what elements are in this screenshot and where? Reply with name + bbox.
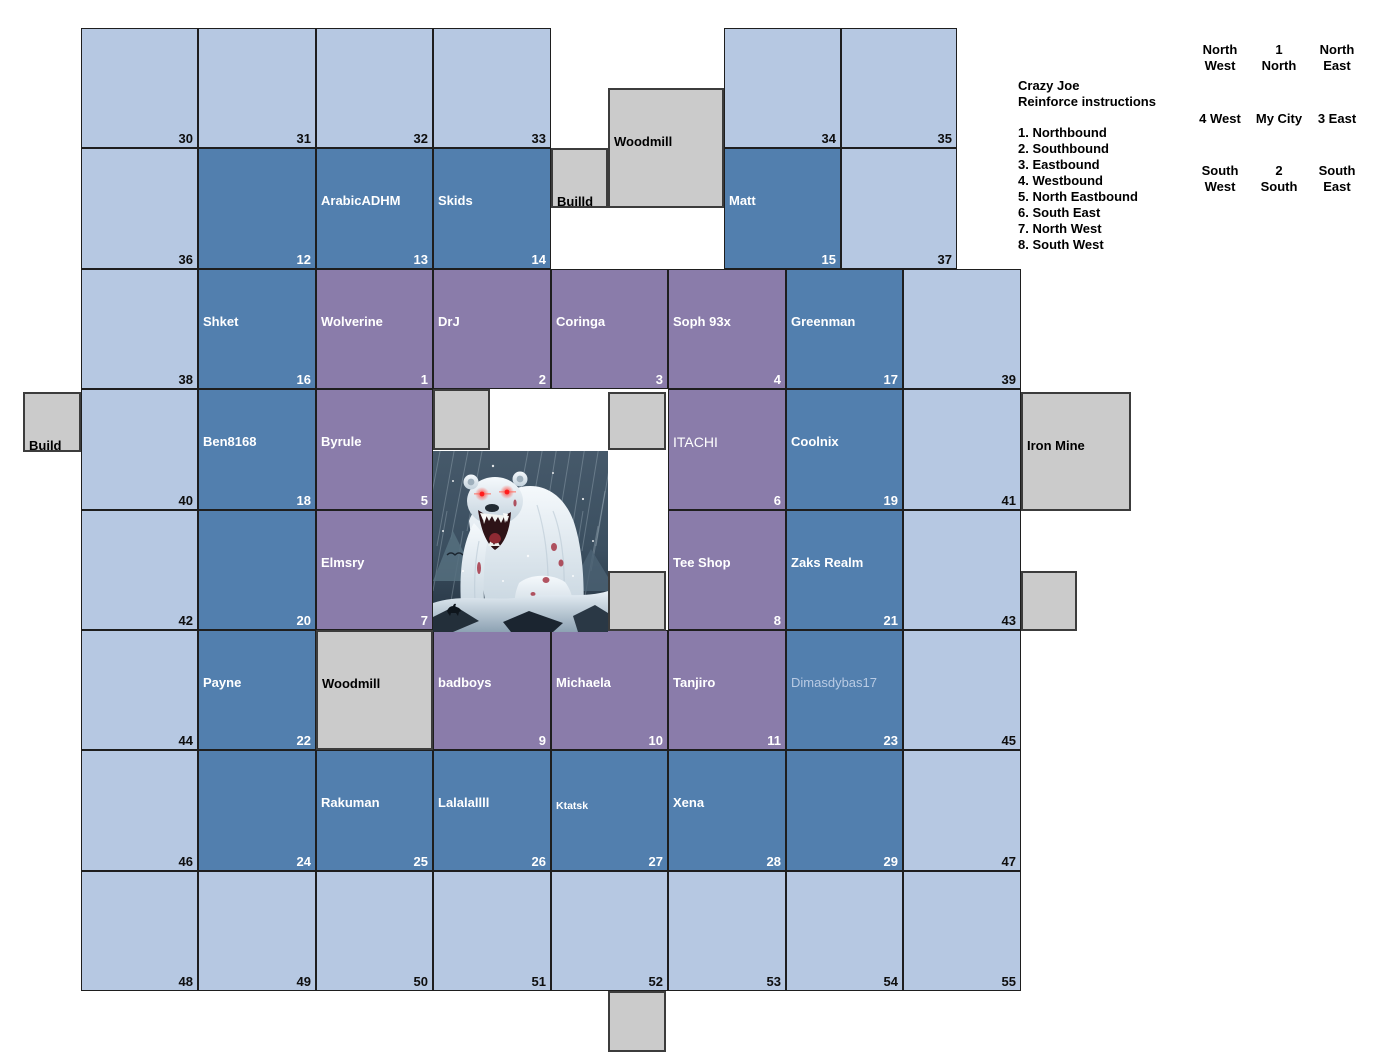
- gray-plot-e[interactable]: [608, 991, 666, 1052]
- player-name: Ktatsk: [556, 798, 588, 814]
- cell-number: 54: [884, 974, 898, 989]
- cell-number: 36: [179, 252, 193, 267]
- cell-number: 27: [649, 854, 663, 869]
- cell-number: 16: [297, 372, 311, 387]
- map-cell-36[interactable]: 36: [81, 148, 198, 269]
- map-cell-38[interactable]: 38: [81, 269, 198, 389]
- map-cell-18[interactable]: Ben816818: [198, 389, 316, 510]
- map-cell-35[interactable]: 35: [841, 28, 957, 148]
- structure-name: Build: [29, 438, 62, 454]
- builld-plot[interactable]: Builld: [551, 148, 608, 208]
- player-name: Soph 93x: [673, 314, 731, 330]
- cell-number: 30: [179, 131, 193, 146]
- map-cell-28[interactable]: Xena28: [668, 750, 786, 871]
- cell-number: 32: [414, 131, 428, 146]
- gray-plot-a[interactable]: [433, 389, 490, 450]
- map-cell-21[interactable]: Zaks Realm21: [786, 510, 903, 630]
- cell-number: 5: [421, 493, 428, 508]
- map-cell-24[interactable]: 24: [198, 750, 316, 871]
- cell-number: 37: [938, 252, 952, 267]
- map-cell-16[interactable]: Shket16: [198, 269, 316, 389]
- structure-name: Builld: [557, 194, 593, 210]
- map-cell-7[interactable]: Elmsry7: [316, 510, 433, 630]
- map-cell-5[interactable]: Byrule5: [316, 389, 433, 510]
- structure-name: Iron Mine: [1027, 438, 1085, 454]
- iron-mine[interactable]: Iron Mine: [1021, 392, 1131, 511]
- cell-number: 10: [649, 733, 663, 748]
- cell-number: 4: [774, 372, 781, 387]
- cell-number: 1: [421, 372, 428, 387]
- cell-number: 48: [179, 974, 193, 989]
- cell-number: 11: [767, 733, 781, 748]
- bear-image: [433, 451, 608, 632]
- map-cell-23[interactable]: Dimasdybas1723: [786, 630, 903, 750]
- cell-number: 23: [884, 733, 898, 748]
- map-cell-48[interactable]: 48: [81, 871, 198, 991]
- cell-number: 46: [179, 854, 193, 869]
- player-name: Rakuman: [321, 795, 380, 811]
- cell-number: 6: [774, 493, 781, 508]
- map-cell-46[interactable]: 46: [81, 750, 198, 871]
- cell-number: 44: [179, 733, 193, 748]
- cell-number: 47: [1002, 854, 1016, 869]
- cell-number: 17: [884, 372, 898, 387]
- player-name: Coolnix: [791, 434, 839, 450]
- map-cell-41[interactable]: 41: [903, 389, 1021, 510]
- map-cell-44[interactable]: 44: [81, 630, 198, 750]
- cell-number: 34: [822, 131, 836, 146]
- player-name: Lalalallll: [438, 795, 489, 811]
- player-name: Shket: [203, 314, 238, 330]
- cell-number: 21: [884, 613, 898, 628]
- instruction-item: 1. Northbound: [1018, 125, 1238, 141]
- panel-title-line1: Crazy Joe: [1018, 78, 1238, 94]
- cell-number: 26: [532, 854, 546, 869]
- map-cell-53[interactable]: 53: [668, 871, 786, 991]
- cell-number: 15: [822, 252, 836, 267]
- player-name: Dimasdybas17: [791, 675, 877, 691]
- structure-name: Woodmill: [322, 676, 380, 692]
- map-cell-45[interactable]: 45: [903, 630, 1021, 750]
- player-name: ITACHI: [673, 434, 718, 450]
- compass-east: 3 East: [1297, 111, 1377, 127]
- map-cell-14[interactable]: Skids14: [433, 148, 551, 269]
- map-cell-55[interactable]: 55: [903, 871, 1021, 991]
- cell-number: 40: [179, 493, 193, 508]
- player-name: Payne: [203, 675, 241, 691]
- gray-plot-d[interactable]: [1021, 571, 1077, 631]
- player-name: Tanjiro: [673, 675, 715, 691]
- map-cell-29[interactable]: 29: [786, 750, 903, 871]
- cell-number: 13: [414, 252, 428, 267]
- map-cell-20[interactable]: 20: [198, 510, 316, 630]
- cell-number: 20: [297, 613, 311, 628]
- player-name: Matt: [729, 193, 756, 209]
- map-cell-50[interactable]: 50: [316, 871, 433, 991]
- map-cell-1[interactable]: Wolverine1: [316, 269, 433, 389]
- instruction-item: 6. South East: [1018, 205, 1238, 221]
- cell-number: 25: [414, 854, 428, 869]
- cell-number: 14: [532, 252, 546, 267]
- cell-number: 28: [767, 854, 781, 869]
- map-cell-25[interactable]: Rakuman25: [316, 750, 433, 871]
- player-name: Coringa: [556, 314, 605, 330]
- map-cell-10[interactable]: Michaela10: [551, 630, 668, 750]
- cell-number: 51: [532, 974, 546, 989]
- map-cell-52[interactable]: 52: [551, 871, 668, 991]
- player-name: Xena: [673, 795, 704, 811]
- cell-number: 8: [774, 613, 781, 628]
- cell-number: 12: [297, 252, 311, 267]
- map-cell-33[interactable]: 33: [433, 28, 551, 148]
- map-cell-2[interactable]: DrJ2: [433, 269, 551, 389]
- cell-number: 3: [656, 372, 663, 387]
- cell-number: 49: [297, 974, 311, 989]
- map-cell-12[interactable]: 12: [198, 148, 316, 269]
- map-cell-49[interactable]: 49: [198, 871, 316, 991]
- cell-number: 31: [297, 131, 311, 146]
- cell-number: 38: [179, 372, 193, 387]
- map-cell-31[interactable]: 31: [198, 28, 316, 148]
- compass-south-east: South East: [1297, 163, 1377, 195]
- instruction-item: 7. North West: [1018, 221, 1238, 237]
- map-cell-51[interactable]: 51: [433, 871, 551, 991]
- build-plot-west[interactable]: Build: [23, 392, 81, 452]
- player-name: ArabicADHM: [321, 193, 400, 209]
- cell-number: 42: [179, 613, 193, 628]
- player-name: badboys: [438, 675, 491, 691]
- alliance-map-canvas: 3031323334353612ArabicADHM13Skids14Matt1…: [0, 0, 1391, 1062]
- map-cell-40[interactable]: 40: [81, 389, 198, 510]
- player-name: Elmsry: [321, 555, 364, 571]
- gray-plot-c[interactable]: [608, 571, 666, 631]
- map-cell-42[interactable]: 42: [81, 510, 198, 630]
- map-cell-26[interactable]: Lalalallll26: [433, 750, 551, 871]
- map-cell-30[interactable]: 30: [81, 28, 198, 148]
- woodmill-north[interactable]: Woodmill: [608, 88, 724, 208]
- cell-number: 53: [767, 974, 781, 989]
- player-name: Tee Shop: [673, 555, 731, 571]
- map-cell-32[interactable]: 32: [316, 28, 433, 148]
- map-cell-17[interactable]: Greenman17: [786, 269, 903, 389]
- map-cell-6[interactable]: ITACHI6: [668, 389, 786, 510]
- cell-number: 35: [938, 131, 952, 146]
- map-cell-39[interactable]: 39: [903, 269, 1021, 389]
- structure-name: Woodmill: [614, 134, 672, 150]
- cell-number: 41: [1002, 493, 1016, 508]
- cell-number: 29: [884, 854, 898, 869]
- cell-number: 52: [649, 974, 663, 989]
- instruction-item: 8. South West: [1018, 237, 1238, 253]
- map-cell-9[interactable]: badboys9: [433, 630, 551, 750]
- cell-number: 7: [421, 613, 428, 628]
- woodmill-south[interactable]: Woodmill: [316, 630, 433, 750]
- player-name: Greenman: [791, 314, 855, 330]
- cell-number: 19: [884, 493, 898, 508]
- player-name: Byrule: [321, 434, 361, 450]
- cell-number: 39: [1002, 372, 1016, 387]
- cell-number: 22: [297, 733, 311, 748]
- map-cell-11[interactable]: Tanjiro11: [668, 630, 786, 750]
- map-cell-47[interactable]: 47: [903, 750, 1021, 871]
- map-cell-54[interactable]: 54: [786, 871, 903, 991]
- cell-number: 50: [414, 974, 428, 989]
- cell-number: 33: [532, 131, 546, 146]
- map-cell-43[interactable]: 43: [903, 510, 1021, 630]
- cell-number: 24: [297, 854, 311, 869]
- gray-plot-b[interactable]: [608, 392, 666, 450]
- cell-number: 45: [1002, 733, 1016, 748]
- cell-number: 55: [1002, 974, 1016, 989]
- map-cell-22[interactable]: Payne22: [198, 630, 316, 750]
- compass-north-east: North East: [1297, 42, 1377, 74]
- map-cell-27[interactable]: Ktatsk27: [551, 750, 668, 871]
- map-cell-3[interactable]: Coringa3: [551, 269, 668, 389]
- player-name: Michaela: [556, 675, 611, 691]
- cell-number: 43: [1002, 613, 1016, 628]
- map-cell-4[interactable]: Soph 93x4: [668, 269, 786, 389]
- player-name: DrJ: [438, 314, 460, 330]
- panel-title-line2: Reinforce instructions: [1018, 94, 1238, 110]
- player-name: Ben8168: [203, 434, 256, 450]
- cell-number: 18: [297, 493, 311, 508]
- player-name: Zaks Realm: [791, 555, 863, 571]
- map-cell-8[interactable]: Tee Shop8: [668, 510, 786, 630]
- map-cell-37[interactable]: 37: [841, 148, 957, 269]
- player-name: Skids: [438, 193, 473, 209]
- map-cell-13[interactable]: ArabicADHM13: [316, 148, 433, 269]
- player-name: Wolverine: [321, 314, 383, 330]
- cell-number: 2: [539, 372, 546, 387]
- map-cell-19[interactable]: Coolnix19: [786, 389, 903, 510]
- cell-number: 9: [539, 733, 546, 748]
- map-cell-15[interactable]: Matt15: [724, 148, 841, 269]
- instruction-item: 2. Southbound: [1018, 141, 1238, 157]
- map-cell-34[interactable]: 34: [724, 28, 841, 148]
